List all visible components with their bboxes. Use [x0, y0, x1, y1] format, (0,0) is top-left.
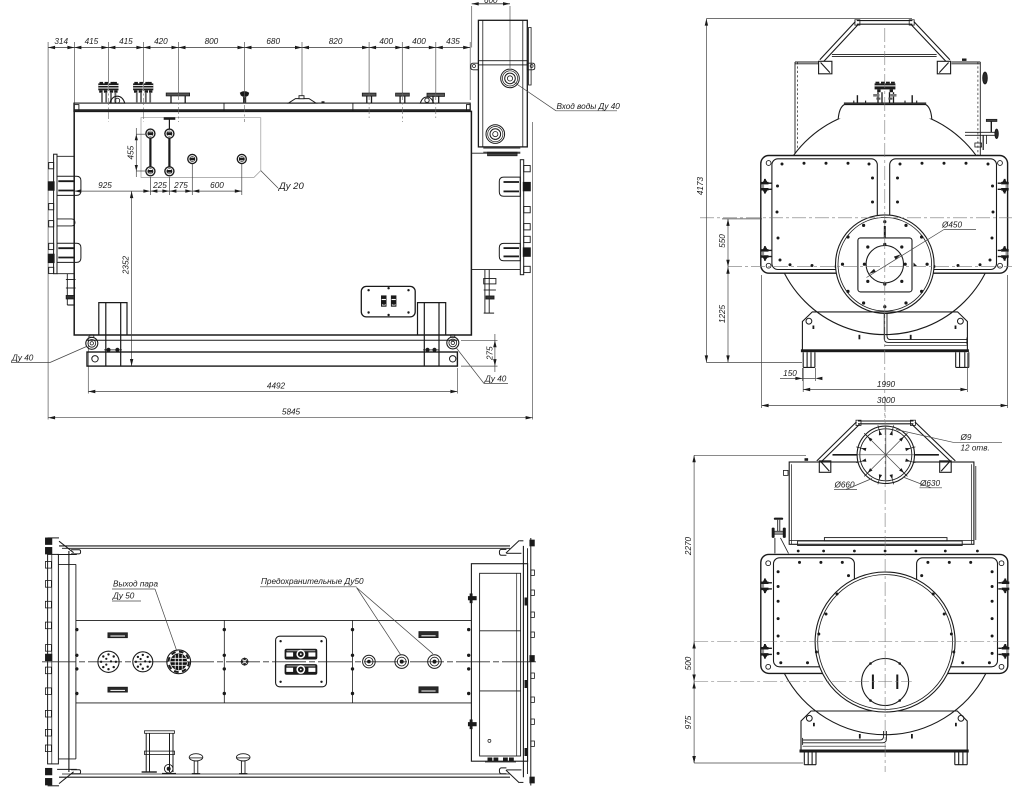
- svg-text:Ø630: Ø630: [919, 479, 940, 488]
- svg-text:275: 275: [485, 346, 494, 361]
- svg-text:975: 975: [684, 715, 693, 729]
- svg-text:2352: 2352: [122, 255, 131, 275]
- svg-text:455: 455: [127, 145, 136, 159]
- svg-text:820: 820: [329, 37, 343, 46]
- svg-text:1225: 1225: [718, 304, 727, 323]
- svg-text:12 отв.: 12 отв.: [961, 444, 990, 453]
- svg-text:Ø450: Ø450: [941, 220, 962, 229]
- svg-text:Выход пара: Выход пара: [113, 580, 158, 589]
- svg-text:3000: 3000: [877, 396, 896, 405]
- svg-text:Ø9: Ø9: [960, 433, 972, 442]
- svg-text:400: 400: [412, 37, 426, 46]
- svg-text:Ду 20: Ду 20: [278, 181, 304, 192]
- svg-text:680: 680: [266, 37, 280, 46]
- svg-text:415: 415: [85, 37, 99, 46]
- svg-text:Ø660: Ø660: [834, 481, 855, 490]
- svg-text:550: 550: [718, 234, 727, 248]
- svg-text:420: 420: [154, 37, 168, 46]
- svg-text:2270: 2270: [684, 536, 693, 556]
- svg-text:5845: 5845: [282, 408, 301, 417]
- svg-text:Предохранительные Ду50: Предохранительные Ду50: [261, 577, 364, 586]
- svg-text:600: 600: [210, 181, 224, 190]
- svg-text:Ду 40: Ду 40: [11, 354, 34, 363]
- svg-text:314: 314: [54, 37, 68, 46]
- svg-text:800: 800: [205, 37, 219, 46]
- svg-text:Вход воды Ду 40: Вход воды Ду 40: [557, 102, 621, 111]
- svg-text:225: 225: [152, 181, 167, 190]
- svg-text:400: 400: [379, 37, 393, 46]
- svg-text:4492: 4492: [267, 382, 286, 391]
- svg-text:925: 925: [98, 181, 112, 190]
- svg-text:600: 600: [484, 0, 498, 5]
- svg-text:500: 500: [684, 656, 693, 670]
- svg-text:150: 150: [783, 369, 797, 378]
- svg-text:4173: 4173: [696, 176, 705, 195]
- svg-text:Ду 40: Ду 40: [484, 375, 507, 384]
- svg-text:415: 415: [119, 37, 133, 46]
- svg-text:Ду 50: Ду 50: [112, 592, 135, 601]
- svg-text:435: 435: [446, 37, 460, 46]
- svg-text:275: 275: [173, 181, 188, 190]
- svg-text:1990: 1990: [877, 380, 896, 389]
